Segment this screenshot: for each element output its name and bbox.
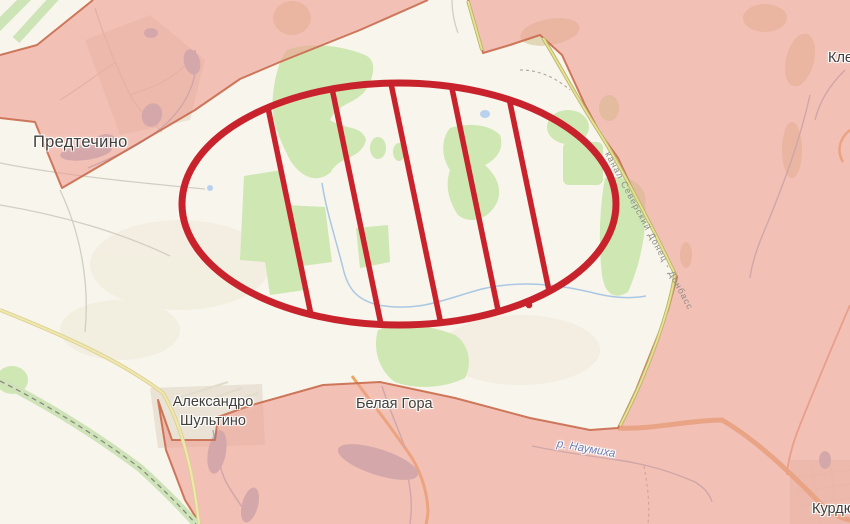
annotation-layer xyxy=(0,0,850,524)
hatch-lines xyxy=(261,74,558,334)
map-canvas[interactable]: Предтечино Александро Шультино Белая Гор… xyxy=(0,0,850,524)
red-dot-marker xyxy=(526,302,533,309)
